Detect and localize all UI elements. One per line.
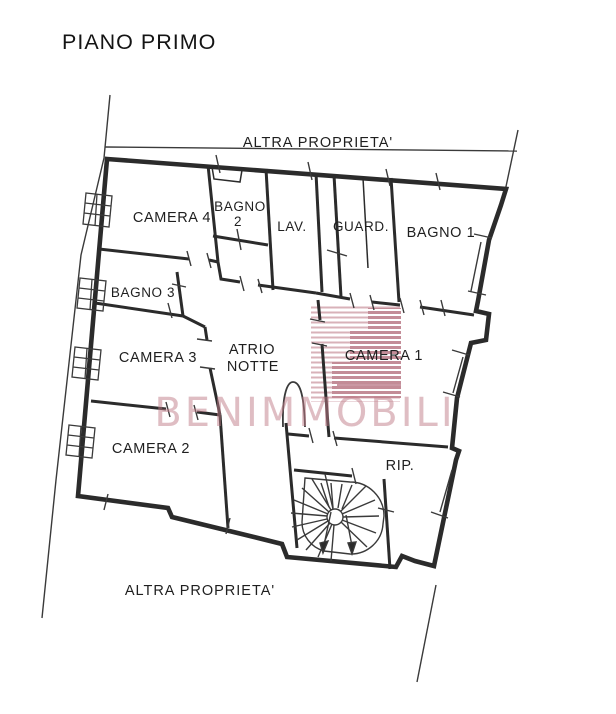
room-label-rip: RIP. [386, 458, 415, 474]
room-label-bagno1: BAGNO 1 [407, 225, 476, 241]
room-label-guard: GUARD. [333, 219, 389, 234]
spiral-staircase [291, 474, 384, 561]
wall-camera4-bottom [99, 249, 218, 262]
top-wall-ticks [216, 155, 440, 190]
hatch-block [83, 193, 112, 227]
room-label-lav: LAV. [277, 219, 306, 234]
wall-lav-left [266, 169, 273, 290]
wall-lav-right [316, 173, 322, 292]
room-label-atrio-line1: ATRIO [229, 342, 275, 358]
room-label-bagno2-line2: 2 [234, 214, 242, 229]
wall-lobby-south [218, 262, 316, 293]
camera3-door-ticks [197, 339, 215, 369]
wall-stair-right [384, 479, 390, 569]
room-label-camera4: CAMERA 4 [133, 210, 211, 226]
camera4-door-ticks [187, 251, 211, 268]
wall-stair-top [294, 470, 352, 476]
room-label-camera1: CAMERA 1 [345, 348, 423, 364]
boundary-bottom-right [417, 585, 436, 682]
page-title: PIANO PRIMO [62, 30, 216, 54]
room-label-atrio-line2: NOTTE [227, 359, 279, 375]
wall-stairhall-west [286, 423, 297, 548]
stair-arrow-head [348, 542, 356, 554]
room-label-camera3: CAMERA 3 [119, 350, 197, 366]
altra-proprieta-bottom: ALTRA PROPRIETA' [125, 583, 275, 599]
stair-door-ticks [352, 468, 394, 512]
labels: PIANO PRIMO ALTRA PROPRIETA' ALTRA PROPR… [62, 30, 475, 599]
logo-base-bar [337, 381, 401, 389]
altra-proprieta-top: ALTRA PROPRIETA' [243, 135, 393, 151]
wall-atrio-topleft [183, 316, 205, 327]
room-label-bagno3: BAGNO 3 [111, 285, 175, 300]
floor-plan: BENIMMOBILI PIANO PRIMO ALTRA PROPRIETA'… [0, 0, 616, 714]
wall-guard-left [334, 175, 341, 297]
room-label-camera2: CAMERA 2 [112, 441, 190, 457]
room-label-bagno2-line1: BAGNO [214, 199, 266, 214]
watermark-text: BENIMMOBILI [154, 390, 455, 436]
boundary-top-right [504, 130, 518, 196]
floorplan-page: BENIMMOBILI PIANO PRIMO ALTRA PROPRIETA'… [0, 0, 616, 714]
wall-guard-right [391, 178, 399, 302]
hatch-block [77, 278, 106, 311]
wall-bagno3-right [177, 272, 183, 316]
